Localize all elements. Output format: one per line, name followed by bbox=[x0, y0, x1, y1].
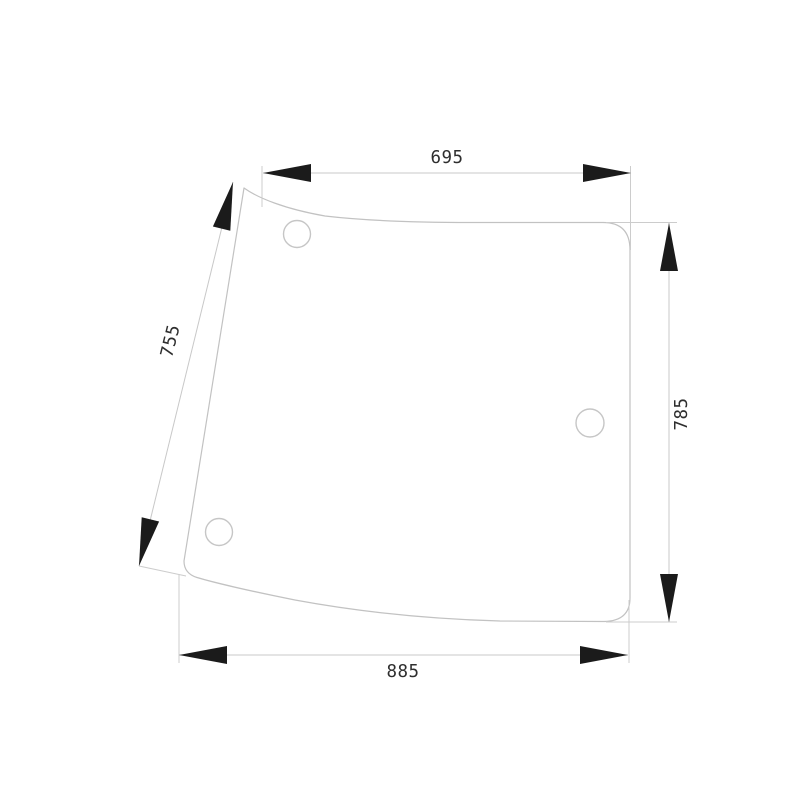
arrowhead-up-icon bbox=[660, 223, 678, 271]
mounting-hole-top-left bbox=[284, 221, 311, 248]
arrowhead-up-icon bbox=[213, 182, 233, 231]
dimension-right: 785 bbox=[606, 223, 692, 623]
arrowhead-left-icon bbox=[263, 164, 311, 182]
arrowhead-down-icon bbox=[139, 517, 159, 566]
dimension-line-left bbox=[139, 182, 233, 566]
glass-outline bbox=[184, 188, 630, 622]
dimension-left-slant: 755 bbox=[139, 182, 233, 576]
dimension-label-right: 785 bbox=[672, 397, 692, 430]
mounting-hole-right bbox=[576, 409, 604, 437]
dimension-label-bottom: 885 bbox=[386, 662, 419, 682]
dimension-label-left: 755 bbox=[157, 323, 184, 360]
arrowhead-left-icon bbox=[179, 646, 227, 664]
mounting-hole-bottom-left bbox=[206, 519, 233, 546]
arrowhead-right-icon bbox=[583, 164, 631, 182]
arrowhead-right-icon bbox=[580, 646, 628, 664]
glass-dimension-drawing: 695 755 785 885 bbox=[0, 0, 800, 800]
drawing-canvas: 695 755 785 885 bbox=[0, 0, 800, 800]
dimension-top: 695 bbox=[262, 148, 631, 250]
dimension-label-top: 695 bbox=[430, 148, 463, 168]
arrowhead-down-icon bbox=[660, 574, 678, 622]
